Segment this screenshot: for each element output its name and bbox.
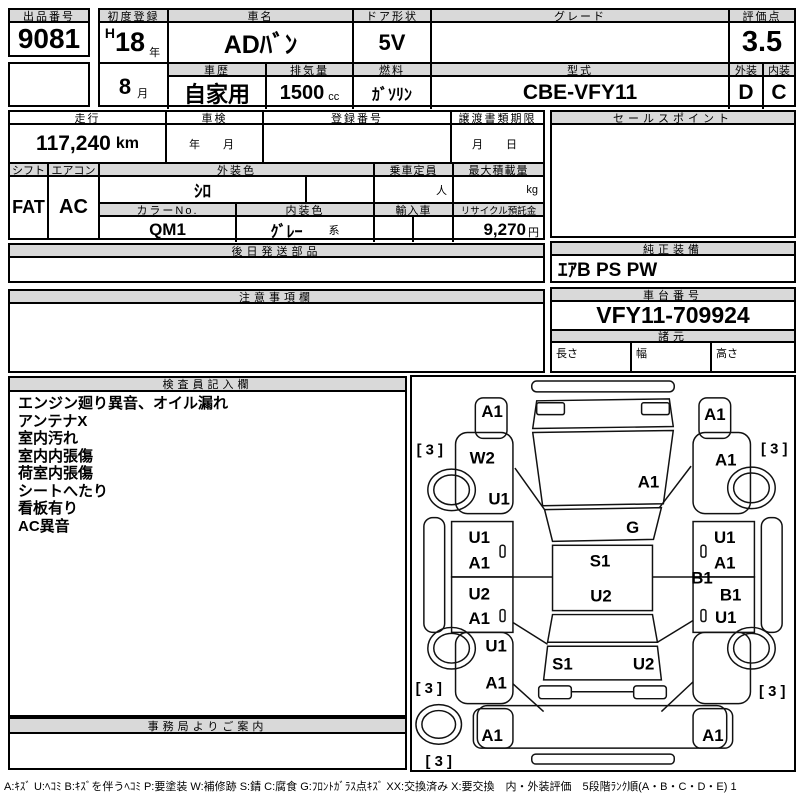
later-parts-block: 後日発送部品 [8, 243, 545, 283]
mileage-spec-block: 走行 車検 登録番号 譲渡書類期限 117,240 km 年 月 月 日 シフト… [8, 110, 545, 240]
interior-color-label: 内装色 [237, 204, 375, 217]
tire-rank-label: [ 3 ] [416, 681, 442, 697]
wheel-rear-right-inner [734, 633, 770, 663]
inspection-value: 年 月 [167, 125, 264, 164]
door-handle-left-front [500, 545, 505, 557]
damage-marker-u2: U2 [590, 586, 612, 605]
interior-color-value: ｸﾞﾚｰ [270, 218, 302, 242]
score-label: 評価点 [730, 10, 794, 23]
damage-marker-a1: A1 [704, 405, 726, 424]
chassis-number: VFY11-709924 [552, 302, 794, 331]
rear-lower-bar [532, 754, 675, 764]
interior-color-unit: 系 [329, 222, 340, 238]
inspection-label: 車検 [167, 112, 264, 125]
capacity-label: 乗車定員 [375, 164, 454, 177]
damage-marker-a1: A1 [714, 554, 736, 573]
seam-rear-right [657, 621, 693, 643]
headlight-right [642, 403, 670, 415]
front-bumper [532, 381, 675, 392]
tire-rank-label: [ 3 ] [759, 684, 785, 700]
sales-point-block: セールスポイント [550, 110, 796, 238]
mileage-cell: 117,240 km [10, 125, 167, 164]
aircon-value: AC [49, 177, 100, 238]
displacement-value: 1500 [280, 82, 325, 105]
chassis-label: 車台番号 [552, 289, 794, 302]
model-code-label: 型式 [432, 64, 730, 77]
score-value: 3.5 [730, 23, 794, 64]
payload-label: 最大積載量 [454, 164, 543, 177]
capacity-unit: 人 [436, 182, 447, 198]
first-reg-month-cell: 8 月 [100, 64, 169, 109]
displacement-unit: cc [328, 91, 339, 103]
seam-front-right [659, 466, 691, 508]
damage-marker-g: G [626, 518, 639, 537]
payload-unit: kg [526, 184, 538, 196]
inspector-note-line: エンジン廻り異音、オイル漏れ [18, 395, 397, 413]
damage-marker-a1: A1 [469, 554, 491, 573]
rear-window [548, 615, 658, 643]
dimension-width-cell: 幅 [632, 343, 712, 371]
windshield [545, 508, 662, 542]
exterior-color-label: 外装色 [100, 164, 375, 177]
door-shape-value: 5V [354, 23, 432, 64]
inspector-block: 検査員記入欄 エンジン廻り異音、オイル漏れアンテナX室内汚れ室内内張傷荷室内張傷… [8, 376, 407, 717]
displacement-label: 排気量 [267, 64, 354, 77]
seam-rear-left [513, 622, 548, 644]
equipment-label: 純正装備 [552, 243, 794, 256]
wheel-front-right-inner [734, 473, 770, 503]
shift-value: FAT [10, 177, 49, 238]
tire-rank-label: [ 3 ] [417, 442, 443, 458]
recycle-cell: 9,270 円 [454, 217, 543, 242]
registration-value [264, 125, 452, 164]
capacity-cell: 人 [375, 177, 454, 204]
tire-rank-label: [ 3 ] [761, 441, 787, 457]
damage-marker-w2: W2 [470, 449, 495, 468]
interior-color-cell: ｸﾞﾚｰ 系 [237, 217, 375, 242]
inspector-note-line: 荷室内張傷 [18, 465, 397, 483]
damage-marker-u1: U1 [485, 637, 507, 656]
inspector-note-line: AC異音 [18, 518, 397, 536]
sill-left [424, 518, 445, 633]
legend-text: A:ｷｽﾞ U:ﾍｺﾐ B:ｷｽﾞを伴うﾍｺﾐ P:要塗装 W:補修跡 S:錆 … [4, 778, 796, 794]
exterior-color-value: ｼﾛ [100, 177, 307, 204]
damage-marker-a1: A1 [485, 673, 507, 692]
damage-marker-b1: B1 [691, 568, 713, 587]
door-handle-right-rear [701, 610, 706, 622]
first-reg-year: 18 [115, 27, 145, 58]
first-reg-year-cell: H 18 年 [100, 23, 169, 64]
tire-rank-label: [ 3 ] [426, 754, 452, 770]
equipment-block: 純正装備 ｴｱB PS PW [550, 241, 796, 283]
import-cell-right [414, 217, 454, 242]
inspector-note-line: 室内汚れ [18, 430, 397, 448]
sales-point-label: セールスポイント [552, 112, 794, 125]
fuel-value: ｶﾞｿﾘﾝ [354, 77, 432, 109]
payload-cell: kg [454, 177, 543, 204]
inspector-note-line: アンテナX [18, 413, 397, 431]
taillight-left [539, 686, 572, 699]
damage-marker-a1: A1 [469, 609, 491, 628]
era-prefix: H [105, 25, 115, 41]
rear-bumper [477, 706, 726, 749]
caution-label: 注意事項欄 [10, 291, 543, 304]
inspector-note-line: 看板有り [18, 500, 397, 518]
history-value: 自家用 [169, 77, 267, 109]
month-unit: 月 [137, 85, 148, 101]
headlight-left [537, 403, 565, 415]
first-reg-label: 初度登録 [100, 10, 169, 23]
car-top-view-diagram: [ 3 ][ 3 ][ 3 ][ 3 ][ 3 ] A1A1W2A1U1A1GU… [412, 377, 794, 770]
damage-marker-a1: A1 [702, 726, 724, 745]
dimension-length-cell: 長さ [552, 343, 632, 371]
recycle-unit: 円 [528, 224, 539, 240]
caution-text [10, 304, 543, 371]
damage-marker-u2: U2 [633, 655, 655, 674]
door-handle-right-front [701, 545, 706, 557]
car-name-label: 車名 [169, 10, 354, 23]
grade-label: グレード [432, 10, 730, 23]
displacement-cell: 1500 cc [267, 77, 354, 109]
damage-marker-u1: U1 [469, 528, 491, 547]
exterior-grade-value: D [730, 77, 764, 109]
damage-marker-a1: A1 [481, 726, 503, 745]
inspector-note-line: 室内内張傷 [18, 448, 397, 466]
top-spec-block: 初度登録 H 18 年 8 月 車名 ADﾊﾞﾝ 車歴 自家用 排気量 1500… [98, 8, 796, 107]
year-unit: 年 [149, 44, 160, 60]
spare-tire-inner [422, 711, 456, 739]
sales-point-text [552, 125, 794, 236]
interior-grade-label: 内装 [764, 64, 794, 77]
import-label: 輸入車 [375, 204, 454, 217]
first-reg-month: 8 [119, 74, 131, 100]
later-parts-text [10, 258, 543, 281]
damage-marker-u1: U1 [714, 528, 736, 547]
damage-marker-u1: U1 [488, 489, 510, 508]
auction-number-empty-box [8, 62, 90, 107]
auction-number-block: 出品番号 9081 [8, 8, 90, 57]
fuel-label: 燃料 [354, 64, 432, 77]
width-label: 幅 [636, 345, 647, 361]
exterior-grade-label: 外装 [730, 64, 764, 77]
damage-diagram-box: [ 3 ][ 3 ][ 3 ][ 3 ][ 3 ] A1A1W2A1U1A1GU… [410, 375, 796, 772]
damage-marker-u1: U1 [715, 608, 736, 627]
color-no-label: カラーNo. [100, 204, 237, 217]
inspector-note-line: シートへたり [18, 483, 397, 501]
transfer-label: 譲渡書類期限 [452, 112, 543, 125]
damage-marker-a1: A1 [638, 472, 660, 491]
caution-block: 注意事項欄 [8, 289, 545, 373]
height-label: 高さ [716, 345, 738, 361]
mileage-label: 走行 [10, 112, 167, 125]
office-label: 事務局よりご案内 [10, 719, 405, 734]
damage-marker-a1: A1 [481, 402, 503, 421]
chassis-block: 車台番号 VFY11-709924 諸元 長さ 幅 高さ [550, 287, 796, 373]
later-parts-label: 後日発送部品 [10, 245, 543, 258]
wheel-rear-left-inner [434, 633, 470, 663]
office-block: 事務局よりご案内 [8, 717, 407, 770]
dimension-height-cell: 高さ [712, 343, 794, 371]
exterior-color-extra-cell [307, 177, 375, 204]
aircon-label: エアコン [49, 164, 100, 177]
wheel-front-left-inner [434, 475, 470, 505]
inspector-label: 検査員記入欄 [10, 378, 405, 392]
color-no-value: QM1 [100, 217, 237, 242]
import-cell-left [375, 217, 414, 242]
sill-right [761, 518, 782, 633]
door-handle-left-rear [500, 610, 505, 622]
damage-marker-a1: A1 [715, 451, 736, 470]
door-shape-label: ドア形状 [354, 10, 432, 23]
mileage-unit: km [116, 135, 139, 153]
auction-number-label: 出品番号 [10, 10, 88, 23]
auction-number-value: 9081 [10, 23, 88, 55]
damage-marker-b1: B1 [720, 585, 742, 604]
damage-marker-s1: S1 [590, 552, 611, 571]
dimensions-label: 諸元 [552, 331, 794, 343]
grade-value [432, 23, 730, 64]
history-label: 車歴 [169, 64, 267, 77]
recycle-label: リサイクル預託金 [454, 204, 543, 217]
car-name-value: ADﾊﾞﾝ [169, 23, 354, 64]
damage-marker-u2: U2 [469, 584, 491, 603]
office-text [10, 734, 405, 768]
recycle-value: 9,270 [483, 220, 526, 240]
tire-rank-layer: [ 3 ][ 3 ][ 3 ][ 3 ][ 3 ] [416, 441, 788, 770]
hood [533, 430, 674, 505]
damage-marker-layer: A1A1W2A1U1A1GU1A1U1A1S1B1B1U2A1U2U1U1A1S… [469, 402, 742, 745]
mileage-value: 117,240 [36, 132, 111, 156]
shift-label: シフト [10, 164, 49, 177]
model-code-value: CBE-VFY11 [432, 77, 730, 109]
damage-marker-s1: S1 [552, 655, 573, 674]
inspector-notes-area: エンジン廻り異音、オイル漏れアンテナX室内汚れ室内内張傷荷室内張傷シートへたり看… [10, 392, 405, 715]
fender-right [693, 432, 750, 513]
equipment-value: ｴｱB PS PW [552, 256, 794, 281]
transfer-value: 月 日 [452, 125, 543, 164]
length-label: 長さ [556, 345, 578, 361]
taillight-right [634, 686, 667, 699]
registration-label: 登録番号 [264, 112, 452, 125]
interior-grade-value: C [764, 77, 794, 109]
